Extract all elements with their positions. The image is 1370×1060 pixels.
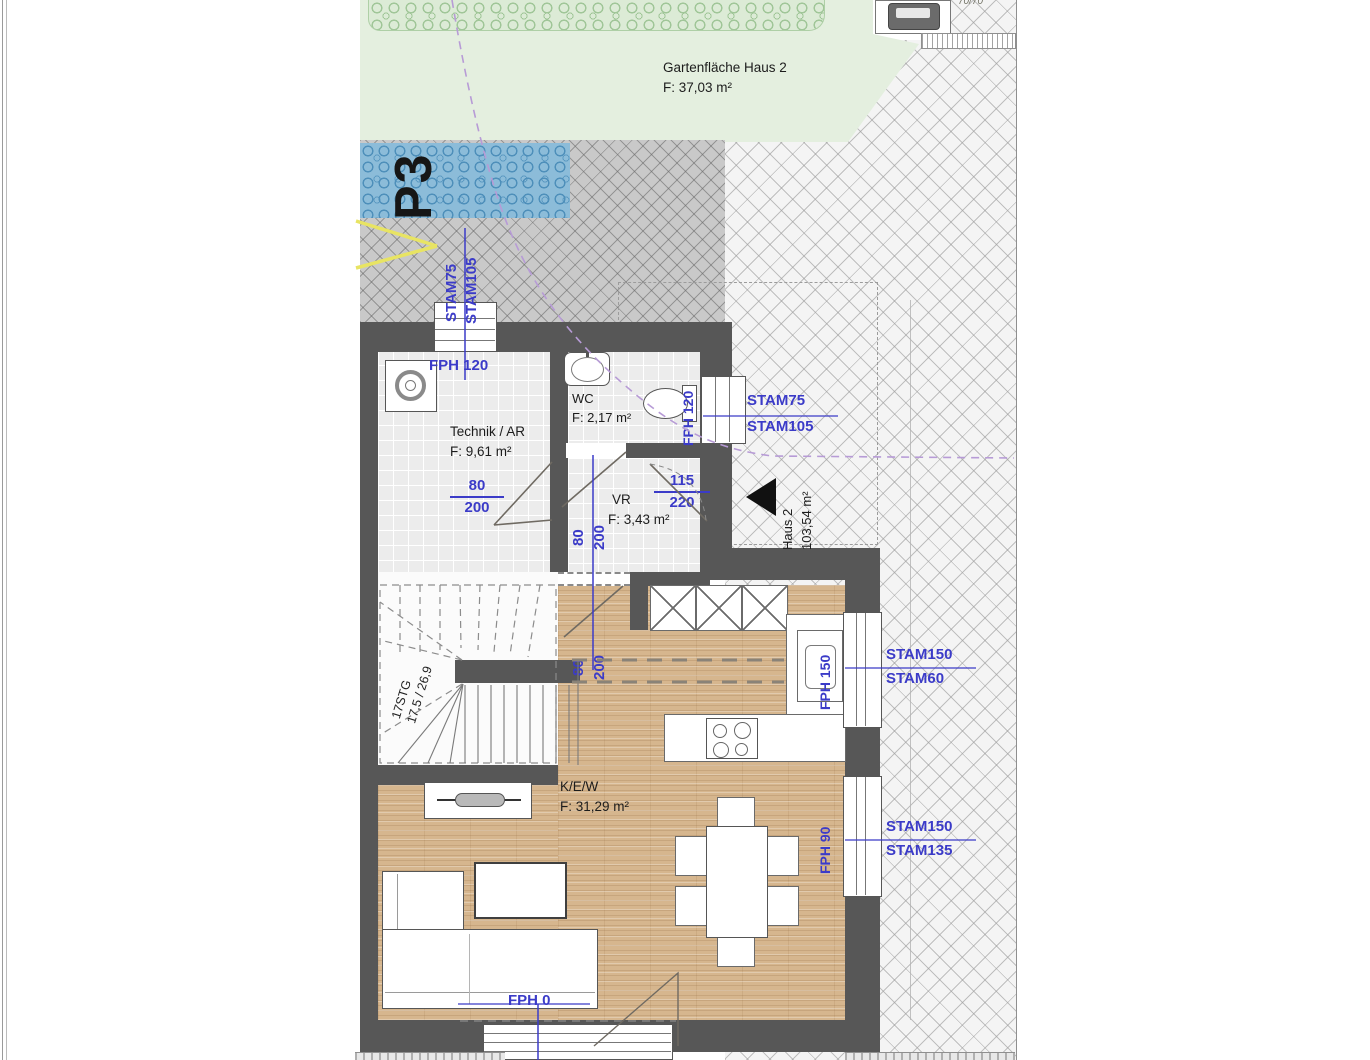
wc-sink-tap: [586, 349, 589, 357]
garden-label: Gartenfläche Haus 2 F: 37,03 m²: [663, 58, 787, 98]
technik-door-size: 80 200: [450, 476, 504, 518]
kitchen-door-height: 200: [591, 632, 608, 680]
kew-name: K/E/W: [560, 777, 629, 797]
vr-area: F: 3,43 m²: [608, 510, 670, 530]
window-dining: [843, 776, 882, 897]
dining-chair-top: [717, 797, 755, 828]
wall-left: [360, 322, 378, 1052]
kitchen-dim1-label: STAM150: [886, 646, 952, 663]
sideboard: [424, 782, 532, 819]
window-kitchen: [843, 612, 882, 728]
dining-chair-left-1: [675, 836, 707, 876]
wall-vr-kitchen: [630, 572, 710, 586]
wc-area: F: 2,17 m²: [572, 408, 631, 427]
technik-area: F: 9,61 m²: [450, 442, 525, 462]
grill-size-label: 70/70: [958, 0, 983, 7]
garden-area-value: F: 37,03 m²: [663, 78, 787, 98]
kitchen-tall-cabinet-1: [650, 585, 696, 631]
wc-name: WC: [572, 389, 631, 408]
vr-door-width: 80: [570, 504, 587, 546]
frame-line-outer: [2, 0, 3, 1060]
vr-name: VR: [612, 490, 670, 510]
dining-dim1-label: STAM150: [886, 818, 952, 835]
washing-machine-drum-center: [405, 380, 416, 391]
house-name: Haus 2: [778, 450, 797, 550]
kitchen-tall-cabinet-3: [742, 585, 788, 631]
bottom-strip-left: [355, 1052, 505, 1060]
entrance-door: [701, 376, 746, 444]
kitchen-dim2-label: STAM60: [886, 670, 944, 687]
technik-door-width: 80: [450, 476, 504, 498]
dining-window-label: FPH 90: [817, 804, 833, 874]
dining-table: [706, 826, 768, 938]
vr-room-label: VR F: 3,43 m²: [612, 490, 670, 530]
garden-hedge-strip: [368, 0, 825, 31]
frame-line-inner: [6, 0, 7, 1060]
wall-top: [360, 322, 732, 352]
parking-stall-label: P3: [383, 135, 447, 220]
wc-sink-basin: [571, 357, 604, 382]
burner-1: [713, 724, 727, 738]
parking-dim2-label: STAM105: [463, 226, 480, 324]
entrance-dim2-label: STAM105: [747, 418, 813, 435]
technik-name: Technik / AR: [450, 422, 525, 442]
grill-box: [875, 0, 951, 34]
vr-door-height: 200: [591, 500, 608, 550]
sofa-seat-back-line: [385, 992, 595, 993]
terrace-sliding-door: [483, 1024, 673, 1060]
sofa-seat: [382, 929, 598, 1009]
entrance-dim1-label: STAM75: [747, 392, 805, 409]
wall-stub-kitchen: [630, 586, 648, 630]
dining-chair-bottom: [717, 936, 755, 967]
sideboard-handle: [455, 793, 505, 807]
entrance-arrow-icon: [746, 478, 776, 516]
wc-room-label: WC F: 2,17 m²: [572, 389, 631, 427]
sofa-cushion-split: [469, 934, 470, 1004]
technik-window-label: FPH 120: [429, 357, 488, 374]
technik-door-height: 200: [450, 498, 504, 518]
parking-dim1-label: STAM75: [443, 230, 460, 322]
coffee-table: [474, 862, 567, 919]
kew-area: F: 31,29 m²: [560, 797, 629, 817]
bottom-strip-right: [845, 1052, 1015, 1060]
kitchen-window-label: FPH 150: [817, 632, 833, 710]
paving-band: [921, 33, 1016, 49]
kew-door-threshold: [558, 572, 630, 586]
wc-door-opening: [566, 443, 626, 458]
wc-sink: [564, 352, 610, 386]
burner-3: [713, 742, 729, 758]
parking-stall-text: P3: [385, 152, 443, 220]
dining-chair-right-2: [767, 886, 799, 926]
dining-chair-right-1: [767, 836, 799, 876]
garden-area: [360, 0, 920, 142]
burner-2: [734, 722, 751, 739]
stair-spine-wall: [455, 660, 580, 683]
kew-room-label: K/E/W F: 31,29 m²: [560, 777, 629, 817]
house-label: Haus 2 103,54 m²: [778, 450, 816, 550]
house-area: 103,54 m²: [797, 450, 816, 550]
kitchen-door-width: 80: [570, 640, 587, 676]
technik-room-label: Technik / AR F: 9,61 m²: [450, 422, 525, 462]
terrace-door-label: FPH 0: [508, 992, 551, 1009]
dining-dim2-label: STAM135: [886, 842, 952, 859]
floor-plan: Gartenfläche Haus 2 F: 37,03 m² 70/70 P3: [0, 0, 1370, 1060]
kitchen-tall-cabinet-2: [696, 585, 742, 631]
wc-side-label: FPH 120: [680, 370, 696, 446]
garden-title: Gartenfläche Haus 2: [663, 58, 787, 78]
cooktop: [706, 718, 758, 759]
grill-icon: [888, 3, 940, 30]
burner-4: [735, 743, 748, 756]
dining-chair-left-2: [675, 886, 707, 926]
